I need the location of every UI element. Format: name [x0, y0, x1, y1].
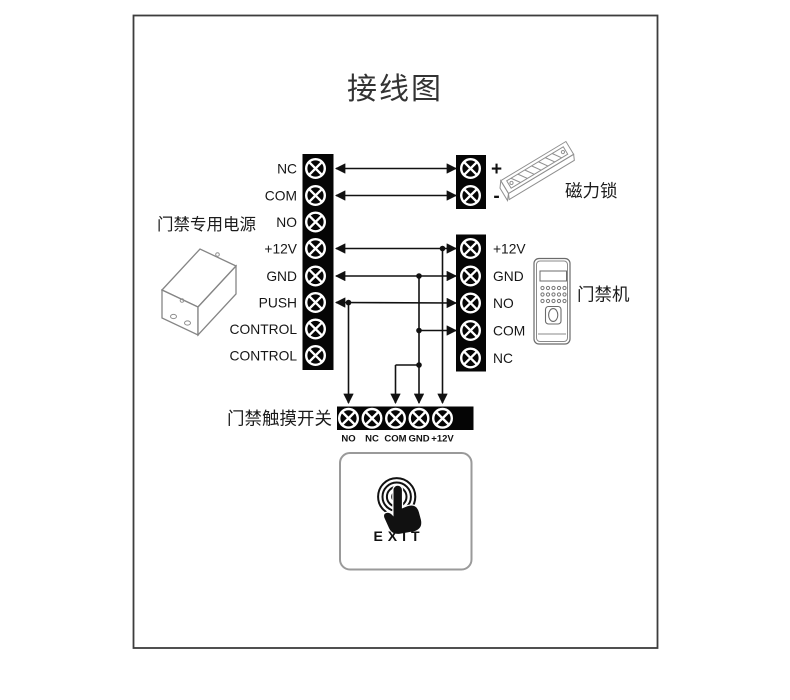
ctrl-terminal-label-nc: NC	[493, 351, 513, 366]
terminal-power-control-1	[306, 320, 325, 339]
terminal-ctrl-gnd	[461, 267, 480, 286]
junction-dot	[440, 246, 446, 252]
junction-dot	[416, 273, 422, 279]
terminal-lock-minus	[461, 186, 480, 205]
power-terminal-label-control-2: CONTROL	[230, 348, 298, 363]
maglock-plus-label: +	[491, 159, 502, 180]
terminal-power-gnd	[306, 267, 325, 286]
terminal-lock-plus	[461, 159, 480, 178]
terminal-power-12v	[306, 239, 325, 258]
terminal-power-nc	[306, 159, 325, 178]
terminal-ctrl-nc	[461, 349, 480, 368]
switch-terminal-label-no: NO	[341, 434, 355, 445]
power-terminal-label-gnd: GND	[266, 269, 297, 284]
wire-push-to-ctrl-no	[336, 303, 456, 304]
diagram-title: 接线图	[347, 73, 443, 106]
power-terminal-label-no: NO	[276, 215, 297, 230]
access-controller-label: 门禁机	[577, 285, 630, 305]
ctrl-terminal-label-no: NO	[493, 296, 514, 311]
junction-dot	[346, 300, 352, 306]
switch-terminal-label-12v: +12V	[431, 434, 454, 445]
junction-dot	[416, 362, 422, 368]
power-supply-label: 门禁专用电源	[157, 215, 256, 234]
ctrl-terminal-label-12v: +12V	[493, 241, 526, 256]
wiring-diagram-page: 接线图 门禁专用电源 NC COM NO +12V GND PUSH CONTR…	[0, 0, 790, 700]
junction-dot	[416, 328, 422, 334]
switch-terminal-label-com: COM	[384, 434, 406, 445]
touch-switch-label: 门禁触摸开关	[227, 409, 332, 429]
wiring-diagram: 接线图 门禁专用电源 NC COM NO +12V GND PUSH CONTR…	[0, 0, 790, 700]
terminal-switch-gnd	[410, 409, 429, 428]
power-terminal-label-push: PUSH	[259, 295, 297, 310]
maglock-label: 磁力锁	[565, 181, 618, 201]
terminal-power-control-2	[306, 346, 325, 365]
exit-button-label: EXIT	[373, 528, 424, 544]
exit-button-icon: EXIT	[340, 453, 472, 570]
terminal-switch-no	[339, 409, 358, 428]
power-terminal-label-nc: NC	[277, 161, 297, 176]
terminal-power-push	[306, 293, 325, 312]
terminal-switch-com	[386, 409, 405, 428]
power-terminal-label-12v: +12V	[264, 241, 297, 256]
switch-terminal-label-nc: NC	[365, 434, 379, 445]
terminal-power-com	[306, 186, 325, 205]
terminal-switch-12v	[433, 409, 452, 428]
power-terminal-label-com: COM	[265, 188, 297, 203]
access-controller-icon	[534, 259, 570, 345]
terminal-switch-nc	[363, 409, 382, 428]
switch-terminal-label-gnd: GND	[408, 434, 429, 445]
maglock-minus-label: -	[493, 186, 499, 207]
ctrl-terminal-label-com: COM	[493, 323, 525, 338]
power-terminal-label-control-1: CONTROL	[230, 322, 298, 337]
terminal-ctrl-com	[461, 321, 480, 340]
terminal-ctrl-12v	[461, 239, 480, 258]
ctrl-terminal-label-gnd: GND	[493, 269, 524, 284]
terminal-ctrl-no	[461, 294, 480, 313]
terminal-power-no	[306, 213, 325, 232]
